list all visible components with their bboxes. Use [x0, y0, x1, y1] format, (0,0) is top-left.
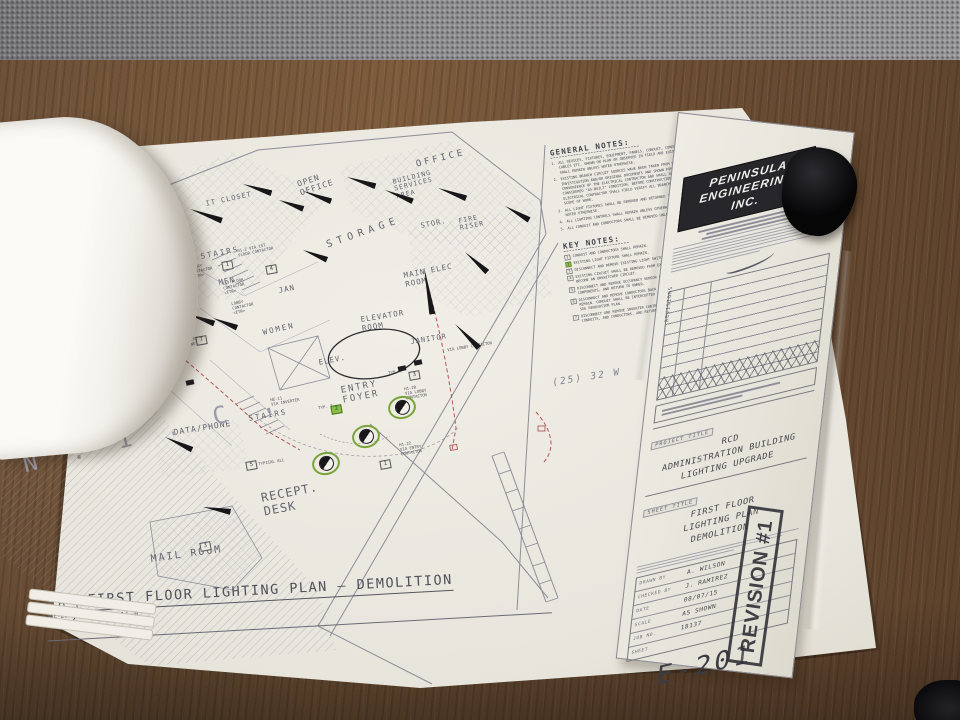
keynote-tag: 5: [245, 460, 257, 471]
revisions-label: REVISIONS: [664, 285, 674, 322]
keynote-box: 7: [573, 315, 580, 321]
green-keynote-tag: 2: [330, 404, 342, 415]
keynote-box: 3: [566, 268, 573, 274]
keynote-tag: 3: [199, 541, 211, 552]
keynote-box: 4: [567, 275, 574, 281]
keynote-tag: 1: [221, 260, 233, 271]
keynote-box: 1: [564, 255, 571, 261]
keynote-tag: 7: [195, 335, 207, 346]
keynote-tag: 1: [379, 459, 391, 470]
photo-of-blueprint-on-desk: OFFICEBUILDING SERVICES AREAOPEN OFFICEI…: [0, 0, 960, 720]
keynote-box: 6: [570, 298, 577, 304]
keynote-tag: 3: [408, 370, 420, 381]
highlighted-keynote-box: 2: [565, 262, 572, 268]
keynote-box: 5: [569, 287, 576, 293]
keynote-tag: 4: [265, 264, 277, 275]
